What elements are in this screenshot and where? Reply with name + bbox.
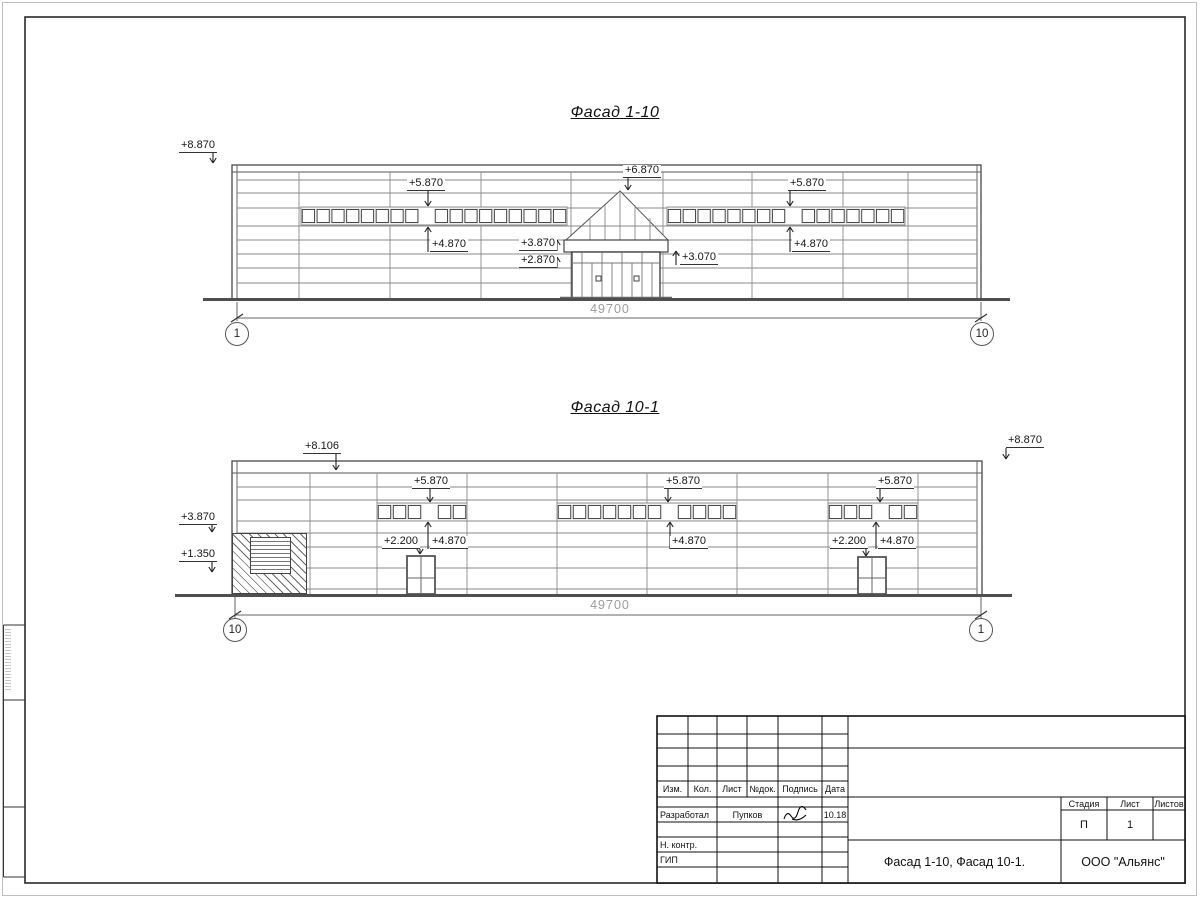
elevation-mark: +2.200 <box>382 536 420 549</box>
elevation-mark: +5.870 <box>876 476 914 489</box>
title-block-stage-value: П <box>1061 819 1107 831</box>
elevation-mark: +4.870 <box>792 239 830 252</box>
facade-b-title: Фасад 10-1 <box>535 399 695 417</box>
axis-label: 1 <box>969 618 993 642</box>
title-block-role-ncontr: Н. контр. <box>660 840 697 850</box>
title-block-header-kol: Кол. <box>688 784 717 794</box>
elevation-mark: +4.870 <box>878 536 916 549</box>
elevation-mark: +3.870 <box>519 238 557 251</box>
axis-label: 10 <box>970 322 994 346</box>
elevation-mark: +1.350 <box>179 549 217 562</box>
title-block-role-developed: Разработал <box>660 810 709 820</box>
elevation-mark: +5.870 <box>407 178 445 191</box>
title-block-name: Пупков <box>717 810 778 820</box>
title-block-header-data: Дата <box>822 784 848 794</box>
elevation-mark: +5.870 <box>664 476 702 489</box>
elevation-mark: +4.870 <box>430 536 468 549</box>
title-block-stage-header: Стадия <box>1061 799 1107 809</box>
title-block-sheet-value: 1 <box>1107 819 1153 831</box>
elevation-mark: +3.870 <box>179 512 217 525</box>
title-block-sheets-header: Листов <box>1153 799 1185 809</box>
elevation-mark: +4.870 <box>670 536 708 549</box>
axis-label: 10 <box>223 618 247 642</box>
elevation-mark: +5.870 <box>788 178 826 191</box>
dimension-value: 49700 <box>560 302 660 316</box>
elevation-mark: +8.106 <box>303 441 341 454</box>
elevation-mark: +3.070 <box>680 252 718 265</box>
axis-label: 1 <box>225 322 249 346</box>
elevation-mark: +4.870 <box>430 239 468 252</box>
elevation-mark: +8.870 <box>1006 435 1044 448</box>
title-block-doc-title: Фасад 1-10, Фасад 10-1. <box>848 855 1061 869</box>
elevation-mark: +8.870 <box>179 140 217 153</box>
elevation-mark: +5.870 <box>412 476 450 489</box>
elevation-mark: +2.200 <box>830 536 868 549</box>
elevation-mark: +2.870 <box>519 255 557 268</box>
title-block-sheet-header: Лист <box>1107 799 1153 809</box>
dimension-value: 49700 <box>560 598 660 612</box>
elevation-mark: +6.870 <box>623 165 661 178</box>
title-block-header-list: Лист <box>717 784 747 794</box>
title-block-date: 10.18 <box>822 810 848 820</box>
title-block-header-ndok: №док. <box>747 784 778 794</box>
title-block-role-gip: ГИП <box>660 855 678 865</box>
text-overlay: Фасад 1-10 Фасад 10-1 +8.870 +5.870 +4.8… <box>0 0 1200 900</box>
title-block-header-izm: Изм. <box>657 784 688 794</box>
title-block-header-podpis: Подпись <box>778 784 822 794</box>
facade-a-title: Фасад 1-10 <box>535 104 695 122</box>
drawing-sheet: Фасад 1-10 Фасад 10-1 +8.870 +5.870 +4.8… <box>0 0 1200 900</box>
title-block-company: ООО "Альянс" <box>1061 855 1185 869</box>
